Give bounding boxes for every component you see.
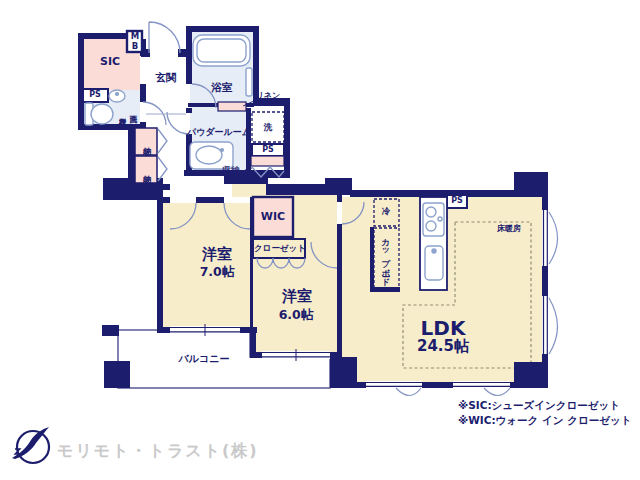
bath-panel-icon	[246, 68, 252, 96]
storage-box-1	[135, 128, 157, 155]
bedroom6-name: 洋室	[282, 289, 312, 305]
ldk-south-window-1	[366, 381, 422, 396]
ldk-size: 24.5帖	[417, 339, 469, 355]
wic-label: WIC	[261, 211, 285, 223]
laundry-label: 洗	[264, 123, 273, 132]
powder-room-label: パウダールーム	[187, 128, 251, 137]
ps-label-2: PS	[262, 146, 274, 154]
linen-shelf	[218, 102, 246, 111]
sic-label: SIC	[100, 56, 120, 68]
company-name: モリモト・トラスト(株)	[57, 441, 259, 462]
bedroom6-size: 6.0帖	[279, 308, 314, 321]
ldk-name: LDK	[421, 318, 466, 339]
closet-label: クローゼット	[254, 244, 306, 253]
ps-label-1: PS	[89, 91, 101, 99]
bathroom-label: 浴室	[212, 82, 233, 93]
company-logo-icon	[12, 427, 49, 463]
cupboard-label: カップボード	[382, 233, 391, 281]
floor-heating-label: 床暖房	[497, 225, 521, 233]
refrigerator-label: 冷	[382, 207, 391, 216]
balcony-label: バルコニー	[179, 354, 230, 365]
floor-plan: SIC MB PS 玄関 浴室 リネン パウダールーム 洗 PS 脱衣所 洗面 …	[0, 0, 640, 480]
ldk-east-window-2	[542, 296, 558, 354]
entrance-label: 玄関	[156, 72, 177, 83]
mb-label: MB	[130, 31, 139, 51]
ldk-south-window-2	[453, 381, 510, 396]
note-sic: ※SIC:シューズインクローゼット	[458, 399, 620, 413]
toilet-icon	[91, 104, 113, 124]
entry-door-arc	[149, 22, 180, 53]
storage-label-3: 収納	[223, 166, 240, 175]
bedroom7-name: 洋室	[202, 247, 232, 263]
ps-label-3: PS	[451, 197, 463, 205]
storage-box-2	[135, 156, 157, 183]
ldk-east-window-1	[542, 210, 558, 266]
note-wic: ※WIC:ウォーク イン クローゼット	[458, 414, 631, 428]
storage-shelf-3	[251, 156, 284, 166]
bedroom7-size: 7.0帖	[200, 265, 235, 278]
linen-label: リネン	[256, 92, 281, 100]
